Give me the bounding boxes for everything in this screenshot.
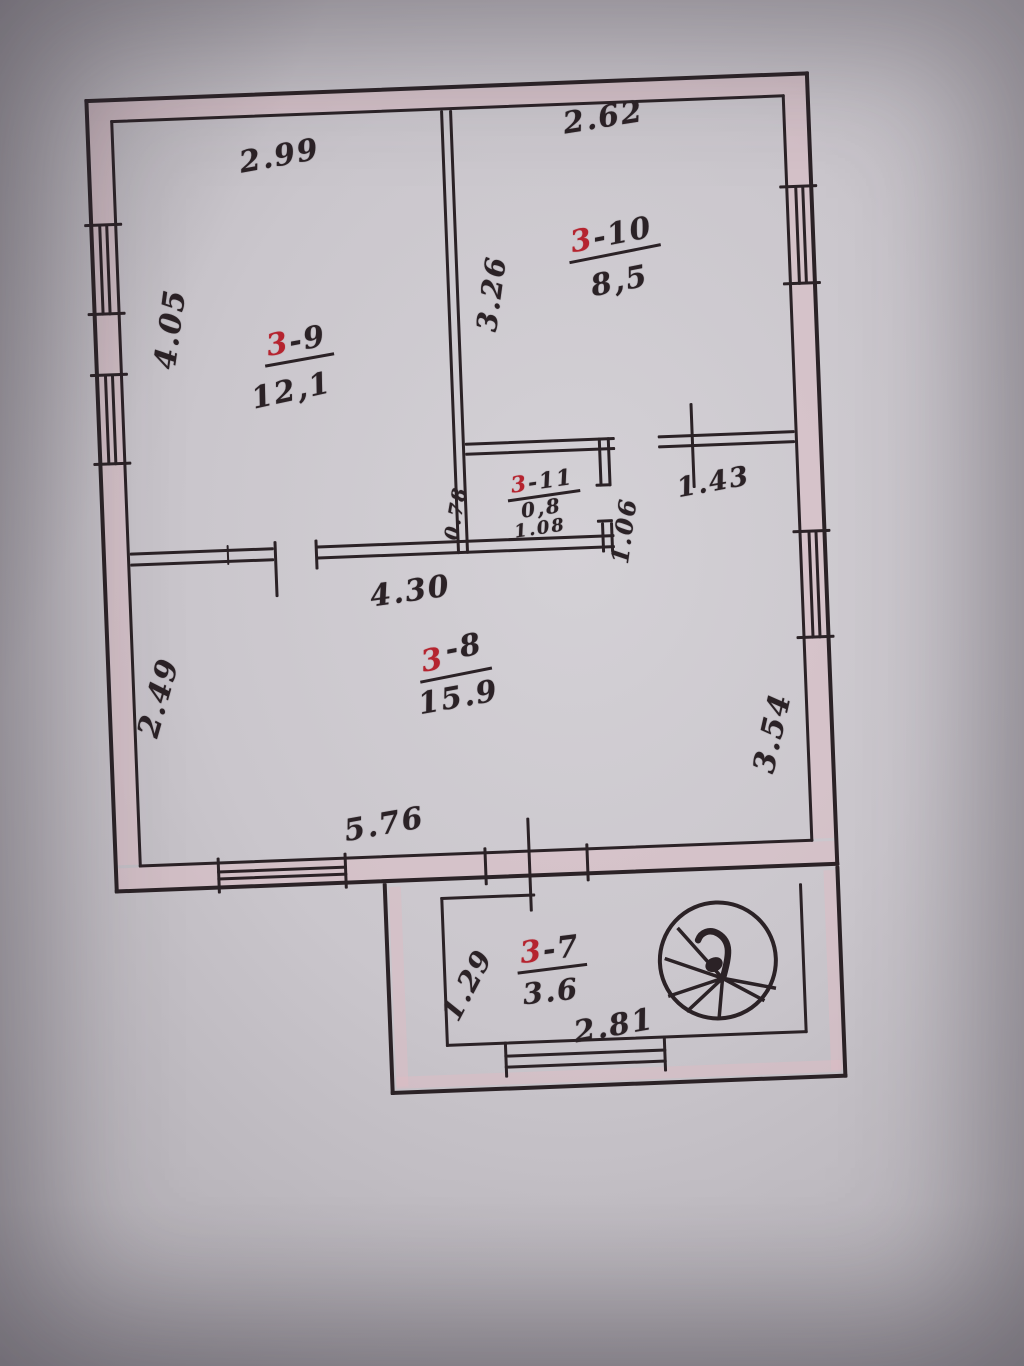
partition-wall (598, 438, 603, 487)
window-symbol (504, 1042, 508, 1078)
door-jamb (597, 519, 613, 523)
partition-wall (130, 547, 274, 556)
partition-wall (658, 440, 795, 448)
room-number-red: 3 (418, 641, 447, 680)
partition-wall (130, 558, 274, 567)
floor-plan: 2.99 2.62 1.43 4.30 5.76 2.81 4.05 3.26 … (0, 0, 1024, 1366)
room-number-suffix: -7 (541, 929, 582, 968)
partition-wall (658, 430, 795, 438)
room-area-3-9: 12,1 (249, 368, 335, 414)
room-area-3-10: 8,5 (588, 261, 651, 302)
dim-room38-width: 5.76 (342, 803, 427, 847)
spiral-staircase-icon (653, 896, 786, 1029)
dim-room37-width: 2.81 (572, 1005, 657, 1049)
partition-wall (465, 447, 615, 456)
room-number-suffix: -9 (286, 319, 329, 360)
door-jamb (273, 541, 278, 597)
dim-room39-height: 4.05 (151, 287, 192, 371)
dim-room39-width: 2.99 (237, 135, 322, 179)
room-wall (440, 893, 535, 900)
partition-wall (465, 437, 615, 446)
room-number-suffix: -10 (590, 210, 656, 256)
room-label-3-7: 3-7 (513, 931, 587, 975)
room-number-suffix: -8 (442, 626, 485, 668)
room-area-3-7: 3.6 (521, 974, 580, 1009)
partition-wall (607, 437, 612, 486)
room-area-3-8: 15.9 (416, 676, 501, 720)
dim-room38-left-height: 2.49 (134, 655, 185, 741)
window-symbol (663, 1035, 667, 1071)
room-label-3-10: 3-10 (563, 212, 661, 264)
dim-corridor: 1.43 (675, 462, 752, 502)
dim-room38-right-height: 3.54 (750, 690, 797, 776)
window-symbol (504, 1048, 666, 1057)
partition-wall (601, 522, 605, 552)
room-label-3-9: 3-9 (259, 321, 334, 368)
room-wall (440, 897, 449, 1047)
dim-partition: 4.30 (368, 571, 453, 612)
door-jamb (314, 540, 318, 570)
floor-plan-photo: 2.99 2.62 1.43 4.30 5.76 2.81 4.05 3.26 … (0, 0, 1024, 1366)
dim-room310-height: 3.26 (473, 254, 511, 333)
room-number-suffix: -11 (526, 464, 575, 496)
door-jamb (595, 483, 611, 487)
room-wall (799, 883, 808, 1033)
